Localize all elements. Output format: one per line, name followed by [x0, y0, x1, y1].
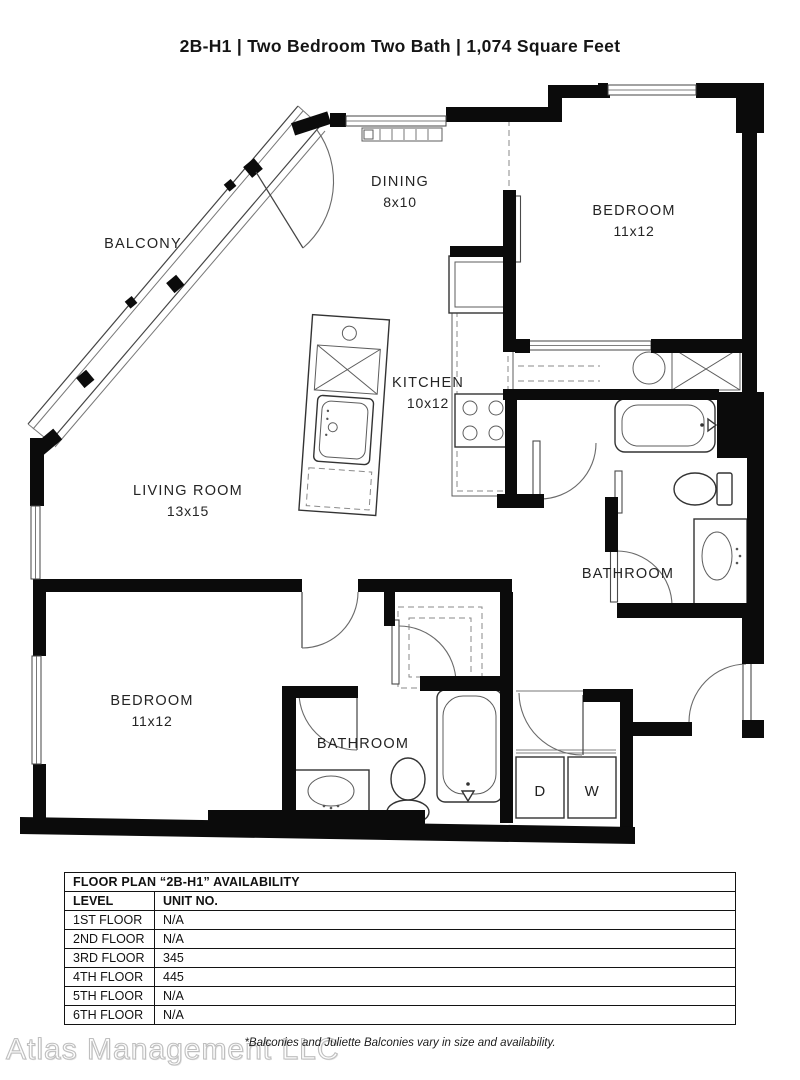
level-cell: 4TH FLOOR [65, 968, 155, 987]
room-label-bathroom2: BATHROOM [317, 736, 409, 752]
room-label-bedroom1: BEDROOM [592, 203, 675, 219]
floor-plan-flyer: 2B-H1 | Two Bedroom Two Bath | 1,074 Squ… [0, 0, 800, 1080]
level-cell: 3RD FLOOR [65, 949, 155, 968]
room-label-bathroom1: BATHROOM [582, 566, 674, 582]
laundry-closet: D W [516, 691, 616, 818]
room-dims-bedroom2: 11x12 [131, 713, 172, 729]
dryer-label: D [534, 783, 545, 800]
room-label-bedroom2: BEDROOM [110, 693, 193, 709]
room-label-kitchen: KITCHEN [392, 375, 464, 391]
room-dims-kitchen: 10x12 [407, 395, 449, 411]
walkin-closet [398, 607, 482, 688]
unit-cell: N/A [155, 930, 736, 949]
toilet [674, 473, 716, 505]
table-title: FLOOR PLAN “2B-H1” AVAILABILITY [65, 873, 736, 892]
level-cell: 6TH FLOOR [65, 1006, 155, 1025]
stove [455, 394, 513, 447]
table-row: 1ST FLOOR N/A [65, 911, 736, 930]
bedroom1-sliding-door [516, 196, 521, 262]
room-label-dining: DINING [371, 174, 429, 190]
room-labels: BALCONY DINING 8x10 BEDROOM 11x12 KITCHE… [104, 174, 676, 752]
column-header-unit: UNIT NO. [155, 892, 736, 911]
column-header-level: LEVEL [65, 892, 155, 911]
unit-cell: N/A [155, 911, 736, 930]
table-header-row: LEVEL UNIT NO. [65, 892, 736, 911]
unit-cell: 345 [155, 949, 736, 968]
unit-cell: N/A [155, 1006, 736, 1025]
availability-table: FLOOR PLAN “2B-H1” AVAILABILITY LEVEL UN… [64, 872, 736, 1025]
entry-door [743, 662, 751, 722]
bathroom2-fixtures [288, 690, 502, 824]
table-row: 5TH FLOOR N/A [65, 987, 736, 1006]
refrigerator [449, 256, 512, 313]
table-row: 3RD FLOOR 345 [65, 949, 736, 968]
table-title-row: FLOOR PLAN “2B-H1” AVAILABILITY [65, 873, 736, 892]
baseboard-heater [362, 128, 442, 141]
vanity [288, 770, 369, 816]
room-dims-bedroom1: 11x12 [613, 223, 654, 239]
room-label-balcony: BALCONY [104, 236, 182, 252]
floor-plan-drawing: D W [0, 60, 800, 865]
unit-cell: 445 [155, 968, 736, 987]
room-label-living: LIVING ROOM [133, 483, 243, 499]
washer-label: W [585, 783, 600, 800]
balcony-footnote: *Balconies and Juliette Balconies vary i… [0, 1037, 800, 1049]
kitchen-island [299, 315, 389, 516]
level-cell: 1ST FLOOR [65, 911, 155, 930]
room-dims-dining: 8x10 [383, 194, 417, 210]
level-cell: 2ND FLOOR [65, 930, 155, 949]
page-title: 2B-H1 | Two Bedroom Two Bath | 1,074 Squ… [0, 36, 800, 57]
toilet [391, 758, 425, 800]
level-cell: 5TH FLOOR [65, 987, 155, 1006]
table-row: 6TH FLOOR N/A [65, 1006, 736, 1025]
table-row: 4TH FLOOR 445 [65, 968, 736, 987]
room-dims-living: 13x15 [167, 503, 209, 519]
table-row: 2ND FLOOR N/A [65, 930, 736, 949]
balcony-structure [28, 106, 334, 457]
unit-cell: N/A [155, 987, 736, 1006]
